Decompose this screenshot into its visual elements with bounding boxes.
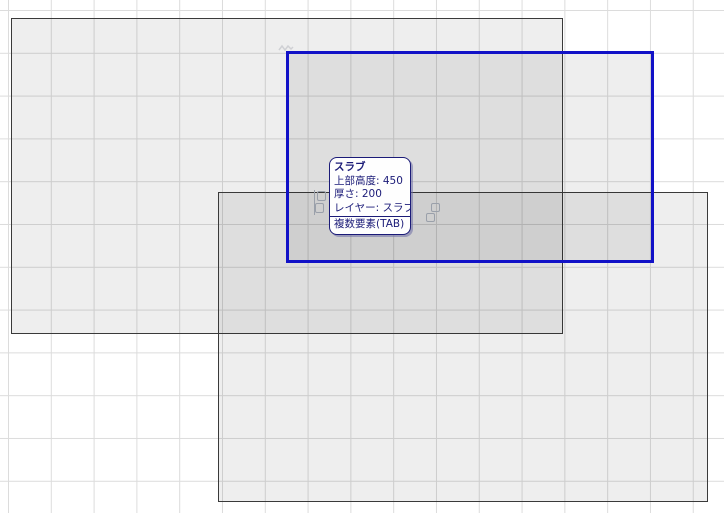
tooltip-element-type: スラブ <box>330 161 410 175</box>
tooltip-thickness: 厚さ: 200 <box>330 188 410 202</box>
drawing-canvas[interactable]: スラブ 上部高度: 450 厚さ: 200 レイヤー: スラブ 複数要素(TAB… <box>0 0 724 513</box>
multi-element-cursor-icon-left <box>314 190 328 216</box>
tooltip-multiple-elements-hint: 複数要素(TAB) <box>330 216 410 232</box>
tooltip-layer: レイヤー: スラブ <box>330 202 410 216</box>
multi-element-cursor-icon-right <box>426 203 442 225</box>
tooltip-top-elevation: 上部高度: 450 <box>330 175 410 189</box>
element-info-tooltip: スラブ 上部高度: 450 厚さ: 200 レイヤー: スラブ 複数要素(TAB… <box>329 157 411 235</box>
